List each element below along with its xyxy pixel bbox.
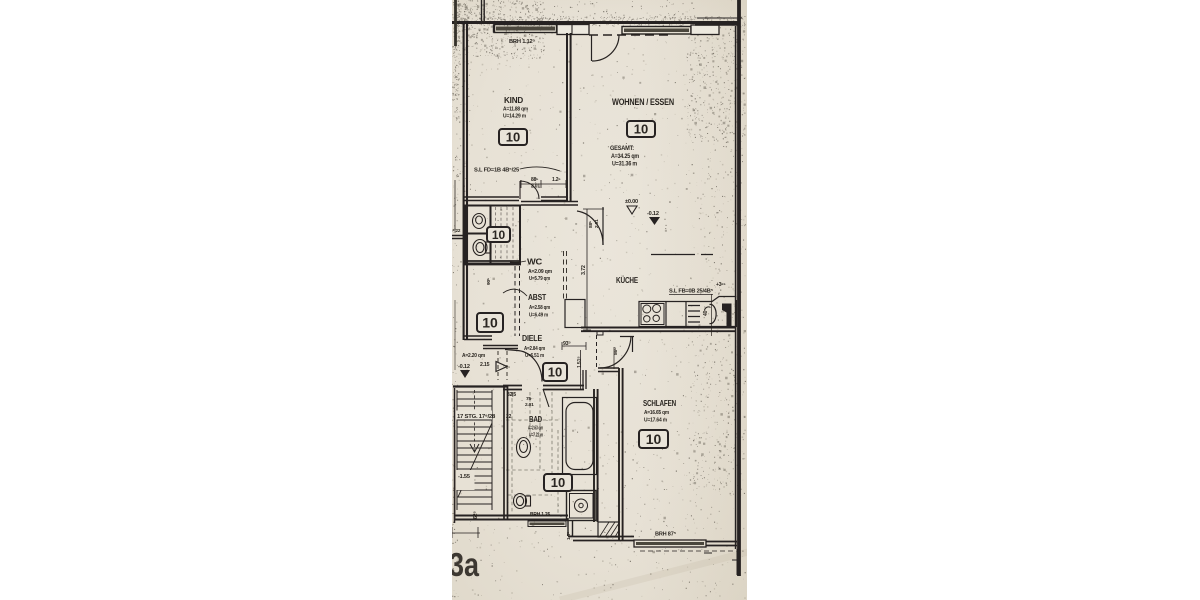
svg-text:S.L FB=0B 25/4B⁵: S.L FB=0B 25/4B⁵: [669, 289, 714, 295]
svg-text:1.5⁵: 1.5⁵: [566, 532, 572, 540]
svg-text:U=6.51 m: U=6.51 m: [525, 353, 544, 359]
svg-text:A=2.84 qm: A=2.84 qm: [524, 346, 545, 352]
svg-text:BRH 87⁵: BRH 87⁵: [655, 532, 677, 538]
svg-text:SCHLAFEN: SCHLAFEN: [643, 398, 676, 408]
svg-text:U=14.29 m: U=14.29 m: [503, 114, 526, 120]
svg-text:86⁵: 86⁵: [613, 348, 619, 355]
svg-text:22: 22: [506, 414, 512, 420]
svg-text:-0.12: -0.12: [647, 211, 659, 217]
svg-text:1.51⁵: 1.51⁵: [577, 356, 583, 368]
svg-text:40: 40: [703, 310, 709, 316]
svg-text:32|5: 32|5: [507, 392, 516, 398]
svg-text:WOHNEN / ESSEN: WOHNEN / ESSEN: [612, 97, 674, 107]
svg-text:GESAMT:: GESAMT:: [610, 146, 634, 152]
svg-text:KÜCHE: KÜCHE: [616, 275, 638, 285]
svg-text:A=2.09 qm: A=2.09 qm: [528, 269, 552, 275]
svg-text:88⁵: 88⁵: [531, 177, 539, 183]
svg-text:U=6.49 m: U=6.49 m: [529, 313, 548, 319]
svg-text:2.01: 2.01: [594, 219, 600, 228]
svg-text:A=34.25 qm: A=34.25 qm: [611, 154, 639, 160]
svg-text:BAD: BAD: [529, 415, 542, 424]
svg-text:S.L FD=1B 4B⁵/25: S.L FD=1B 4B⁵/25: [474, 168, 519, 174]
svg-text:10: 10: [646, 431, 662, 447]
svg-text:90⁵: 90⁵: [486, 278, 492, 285]
svg-text:DIELE: DIELE: [522, 334, 543, 343]
svg-text:±0.00: ±0.00: [625, 199, 638, 205]
svg-text:A=11.88 qm: A=11.88 qm: [503, 107, 528, 113]
svg-text:10: 10: [634, 122, 648, 137]
svg-text:2.15: 2.15: [480, 362, 490, 368]
svg-text:ABST: ABST: [528, 293, 546, 302]
svg-text:+3⁶⁵: +3⁶⁵: [716, 282, 726, 288]
svg-text:75: 75: [526, 396, 531, 402]
svg-text:10: 10: [551, 475, 565, 490]
svg-text:BRH 1.25: BRH 1.25: [530, 512, 550, 518]
svg-text:2.01: 2.01: [531, 184, 540, 190]
svg-text:10: 10: [492, 228, 506, 242]
svg-text:3a: 3a: [449, 546, 480, 583]
svg-text:BRH 1.12⁵: BRH 1.12⁵: [509, 39, 536, 45]
svg-text:U=17.64 m: U=17.64 m: [644, 418, 667, 424]
svg-text:1.2⁵: 1.2⁵: [552, 177, 561, 183]
svg-text:2.01: 2.01: [525, 402, 534, 408]
svg-text:U=5.79 qm: U=5.79 qm: [529, 276, 550, 282]
svg-text:U=31.36 m: U=31.36 m: [612, 162, 637, 168]
svg-text:62⁵: 62⁵: [473, 511, 479, 519]
svg-text:3.72: 3.72: [581, 265, 587, 275]
svg-text:10: 10: [548, 365, 562, 380]
svg-text:A=2.20 qm: A=2.20 qm: [462, 353, 485, 359]
svg-text:10: 10: [482, 315, 498, 331]
svg-text:-0.12: -0.12: [458, 364, 470, 370]
svg-text:WC: WC: [527, 258, 542, 267]
svg-text:93⁵: 93⁵: [563, 341, 571, 347]
svg-text:88⁵: 88⁵: [588, 221, 594, 228]
svg-text:A=16.65 qm: A=16.65 qm: [644, 410, 669, 416]
svg-text:-1.55: -1.55: [458, 474, 470, 480]
svg-text:A=2.63 qm: A=2.63 qm: [528, 426, 543, 432]
svg-text:10: 10: [506, 130, 520, 145]
svg-text:17 STG. 17⁹/28: 17 STG. 17⁹/28: [457, 414, 495, 420]
svg-text:U=7.22 m: U=7.22 m: [529, 433, 543, 439]
svg-text:KIND: KIND: [504, 95, 523, 105]
svg-text:A=2.58 qm: A=2.58 qm: [529, 305, 550, 311]
